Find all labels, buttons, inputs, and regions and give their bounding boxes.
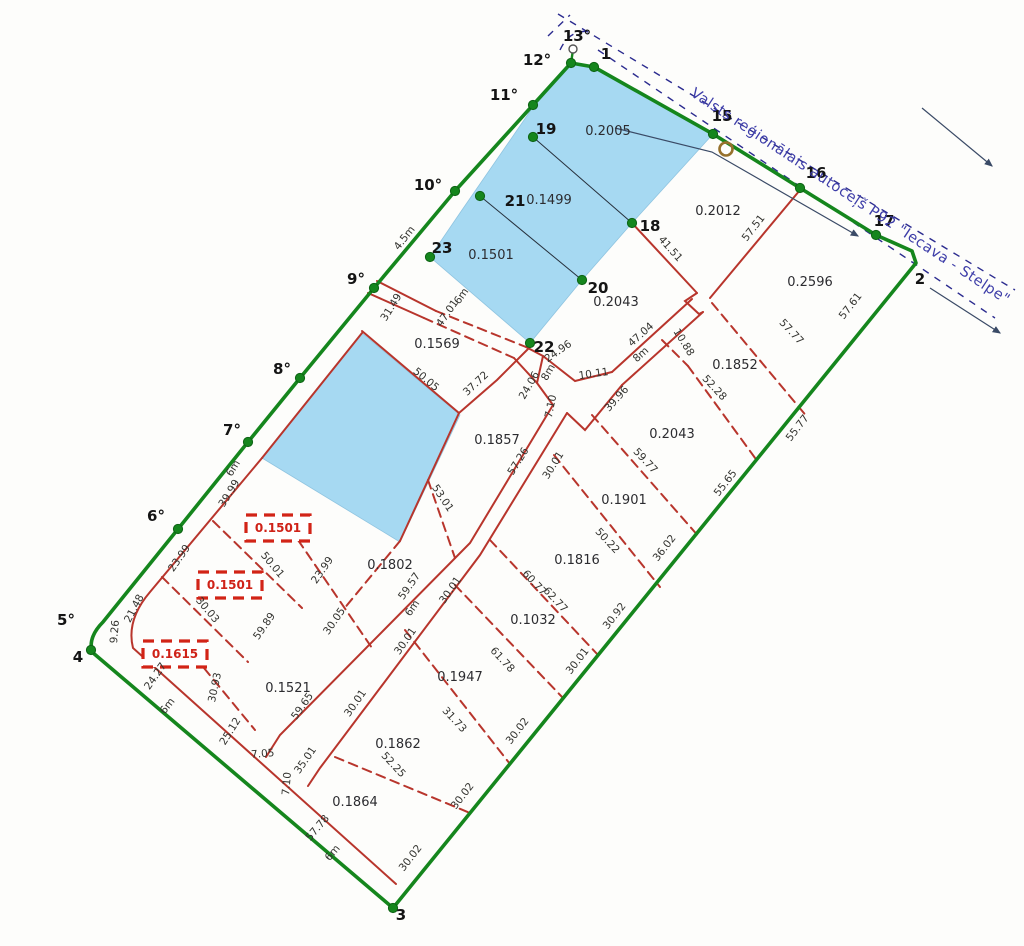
open-point-marker[interactable] — [569, 45, 577, 53]
dimension-label: 37.72 — [461, 369, 491, 398]
vertex-label: 9° — [347, 270, 365, 288]
parcel-area-label: 0.2005 — [585, 124, 631, 139]
dimension-label: 57.78 — [303, 813, 332, 844]
vertex-label: 13° — [563, 27, 591, 45]
parcel-area-label: 0.1901 — [601, 493, 647, 508]
dimension-label: 53.01 — [429, 483, 456, 515]
parcel-area-label: 0.1499 — [526, 193, 572, 208]
dimension-label: 50.01 — [258, 550, 287, 581]
dimension-label: 30.92 — [601, 601, 629, 632]
boundary-point-marker[interactable] — [577, 275, 586, 284]
vertex-label: 1 — [601, 45, 611, 63]
vertex-label: 21 — [505, 192, 526, 210]
vertex-label: 8° — [273, 360, 291, 378]
dimension-label: 30.01 — [540, 449, 566, 481]
dimension-label: 57.26 — [505, 445, 531, 477]
parcel-area-label: 0.1501 — [468, 248, 514, 263]
parcel-area-label: 0.1852 — [712, 358, 758, 373]
dimension-label: 61.78 — [488, 645, 517, 675]
road-direction-arrow — [922, 108, 992, 166]
culvert-marker — [720, 143, 733, 156]
boundary-point-marker[interactable] — [566, 58, 575, 67]
dimension-label: 21.48 — [122, 593, 147, 625]
boundary-point-marker[interactable] — [589, 62, 598, 71]
boundary-point-marker[interactable] — [627, 218, 636, 227]
dimension-label: 35.01 — [292, 745, 319, 777]
boundary-point-marker[interactable] — [295, 373, 304, 382]
vertex-label: 5° — [57, 611, 75, 629]
parcel-area-label: 0.2012 — [695, 204, 741, 219]
parcel-area-label: 0.2043 — [593, 295, 639, 310]
vertex-label: 12° — [523, 51, 551, 69]
vertex-label: 7° — [223, 421, 241, 439]
boundary-point-marker[interactable] — [86, 645, 95, 654]
vertex-label: 3 — [396, 906, 406, 924]
vertex-label: 23 — [432, 239, 453, 257]
dimension-label: 23.99 — [309, 555, 336, 587]
highlighted-parcel[interactable] — [262, 333, 460, 542]
dimension-label: 7.10 — [543, 394, 560, 419]
red-parcel-line — [685, 293, 703, 314]
parcel-area-label: 0.1569 — [414, 337, 460, 352]
red-parcel-line — [459, 347, 530, 413]
cadastral-survey-plan: 0.15010.15010.16150.20050.14990.15010.20… — [0, 0, 1024, 946]
dimension-label: 52.25 — [379, 750, 408, 780]
boundary-point-marker[interactable] — [369, 283, 378, 292]
vertex-label: 4 — [73, 648, 83, 666]
vertex-label: 10° — [414, 176, 442, 194]
dimension-label: 30.02 — [397, 843, 425, 874]
dimension-label: 6m — [323, 843, 343, 864]
dimension-label: 39.96 — [602, 384, 631, 415]
boundary-point-marker[interactable] — [475, 191, 484, 200]
parcel-area-label: 0.1802 — [367, 558, 413, 573]
dimension-label: 39.99 — [216, 477, 242, 509]
parcel-area-label: 0.1857 — [474, 433, 520, 448]
dimension-label: 59.89 — [251, 611, 278, 643]
dimension-label: 30.02 — [449, 781, 477, 812]
dimension-label: 57.61 — [837, 291, 865, 322]
vertex-label: 2 — [915, 270, 925, 288]
red-parcel-line-dashed — [343, 541, 400, 610]
parcel-area-label: 0.1947 — [437, 670, 483, 685]
dimension-label: 55.77 — [784, 413, 812, 444]
vertex-label: 11° — [490, 86, 518, 104]
dimension-label: 23.99 — [166, 543, 193, 575]
boundary-point-marker[interactable] — [243, 437, 252, 446]
dimension-label: 31.73 — [440, 705, 469, 735]
vertex-label: 22 — [534, 338, 555, 356]
boundary-point-marker[interactable] — [450, 186, 459, 195]
parcel-area-label: 0.2596 — [787, 275, 833, 290]
dimension-label: 6m — [224, 458, 243, 479]
dimension-label: 30.01 — [564, 646, 592, 677]
vertex-label: 18 — [640, 217, 661, 235]
dimension-label: 59.57 — [396, 571, 423, 603]
parcel-area-label: 0.2043 — [649, 427, 695, 442]
dimension-label: 7.05 — [251, 747, 275, 761]
dimension-label: 57.77 — [777, 317, 806, 347]
dimension-label: 9.26 — [108, 619, 122, 644]
red-parcel-line-dashed — [688, 366, 758, 462]
dimension-label: 41.51 — [656, 234, 685, 264]
dimension-label: 57.51 — [740, 213, 768, 244]
dimension-label: 7.10 — [280, 772, 294, 796]
parcel-area-label: 0.1816 — [554, 553, 600, 568]
reserved-parcel-area-label: 0.1501 — [207, 578, 253, 592]
survey-plan-canvas: 0.15010.15010.16150.20050.14990.15010.20… — [0, 0, 1024, 946]
parcel-area-label: 0.1862 — [375, 737, 421, 752]
dimension-label: 30.05 — [321, 606, 348, 638]
dimension-label: 59.77 — [631, 446, 660, 476]
parcel-area-label: 0.1864 — [332, 795, 378, 810]
boundary-point-marker[interactable] — [528, 100, 537, 109]
boundary-point-marker[interactable] — [871, 230, 880, 239]
parcel-area-label: 0.1032 — [510, 613, 556, 628]
reserved-parcel-area-label: 0.1501 — [255, 521, 301, 535]
reserved-parcel-area-label: 0.1615 — [152, 647, 198, 661]
road-name-label: Valsts reģionālais autoceļš P92 "Iecava … — [688, 85, 1013, 308]
vertex-label: 20 — [588, 279, 609, 297]
vertex-label: 19 — [536, 120, 557, 138]
boundary-point-marker[interactable] — [795, 183, 804, 192]
vertex-label: 6° — [147, 507, 165, 525]
dimension-label: 30.93 — [206, 671, 224, 703]
boundary-point-marker[interactable] — [173, 524, 182, 533]
dimension-label: 6m — [158, 696, 178, 717]
dimension-label: 10.11 — [578, 366, 609, 382]
dimension-label: 52.28 — [700, 373, 729, 403]
dimension-label: 30.01 — [342, 688, 369, 720]
red-parcel-line-dashed — [298, 540, 372, 648]
boundary-point-marker[interactable] — [708, 129, 717, 138]
dimension-label: 50.22 — [593, 526, 622, 556]
